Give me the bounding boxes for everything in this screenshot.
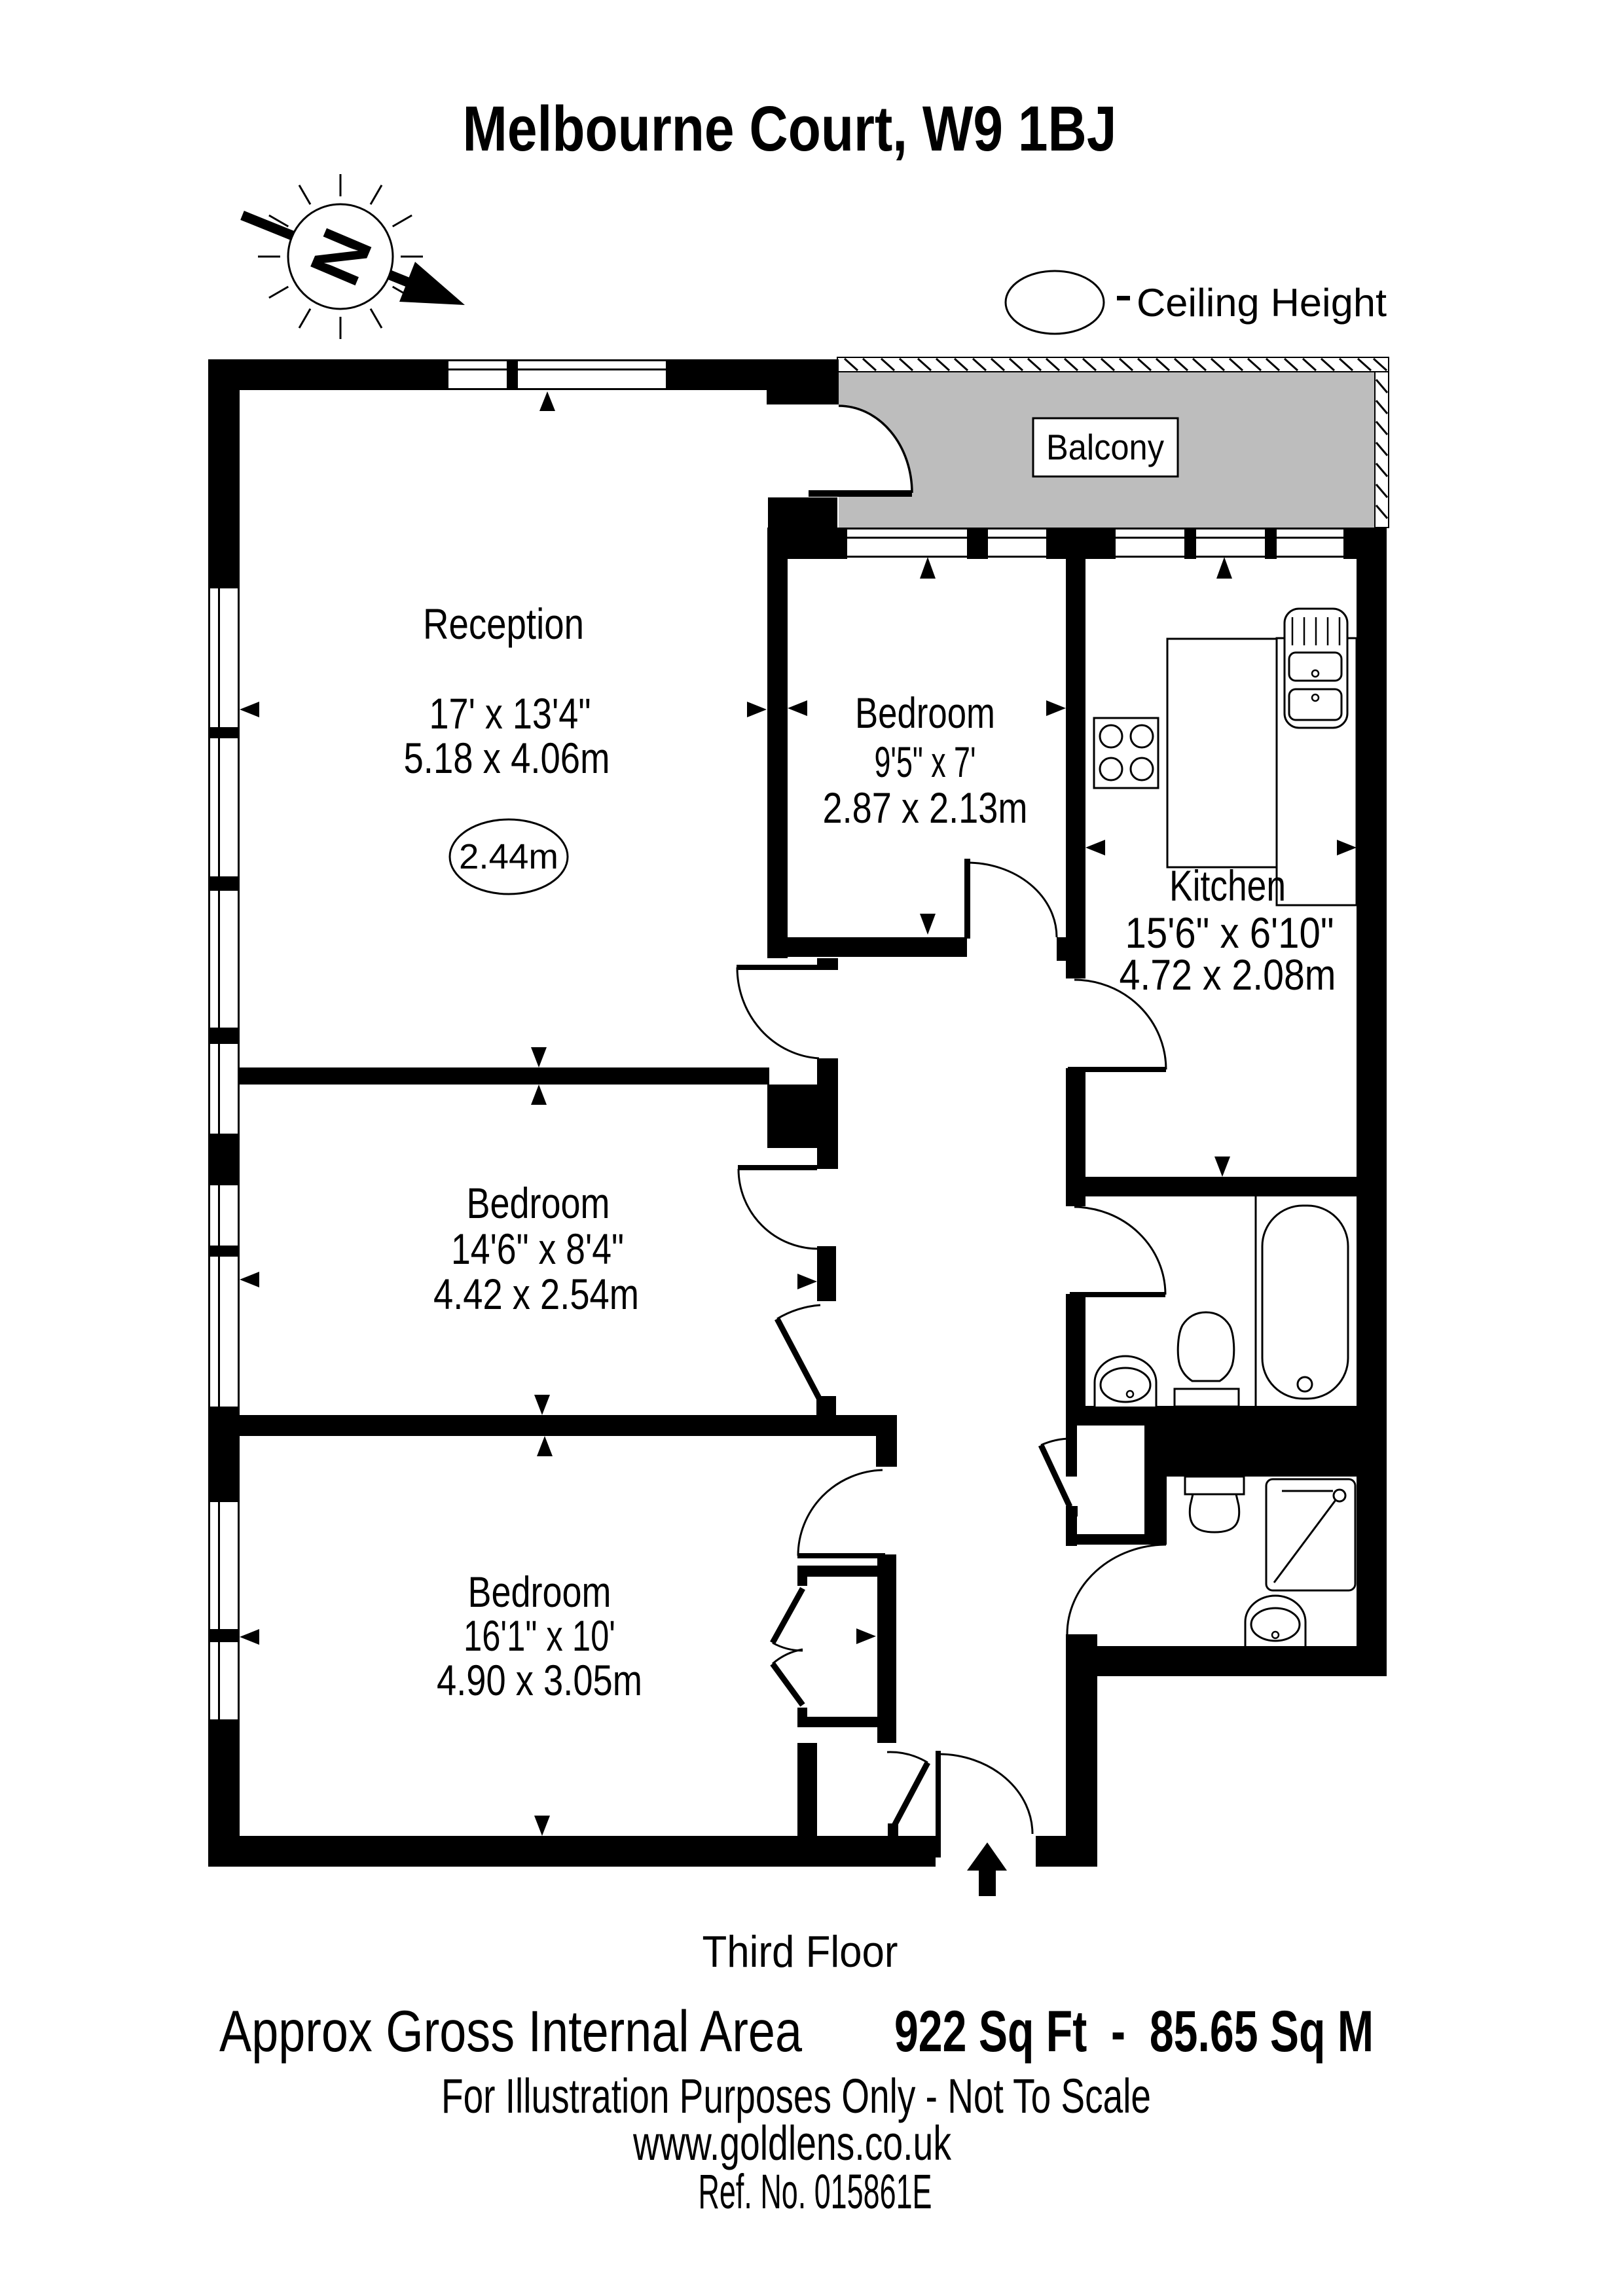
svg-text:5.18 x 4.06m: 5.18 x 4.06m <box>404 734 610 782</box>
svg-text:Reception: Reception <box>423 600 584 648</box>
svg-text:Ceiling Height: Ceiling Height <box>1137 281 1387 325</box>
svg-text:2.87 x 2.13m: 2.87 x 2.13m <box>823 783 1028 832</box>
svg-text:Bedroom: Bedroom <box>467 1179 610 1227</box>
svg-text:Approx Gross Internal Area: Approx Gross Internal Area <box>219 1998 802 2064</box>
svg-text:For Illustration Purposes Only: For Illustration Purposes Only - Not To … <box>441 2069 1151 2123</box>
svg-text:4.72 x 2.08m: 4.72 x 2.08m <box>1120 950 1336 999</box>
svg-text:www.goldlens.co.uk: www.goldlens.co.uk <box>632 2116 951 2170</box>
svg-text:4.90 x 3.05m: 4.90 x 3.05m <box>437 1656 642 1704</box>
svg-text:9'5" x 7': 9'5" x 7' <box>875 738 976 786</box>
svg-text:Kitchen: Kitchen <box>1169 861 1286 910</box>
svg-text:Third Floor: Third Floor <box>702 1927 898 1977</box>
svg-text:16'1" x 10': 16'1" x 10' <box>464 1611 615 1660</box>
svg-text:Melbourne Court, W9 1BJ: Melbourne Court, W9 1BJ <box>463 93 1117 164</box>
svg-text:Ref. No. 015861E: Ref. No. 015861E <box>699 2164 932 2219</box>
svg-text:2.44m: 2.44m <box>459 837 558 876</box>
svg-text:Balcony: Balcony <box>1046 427 1164 467</box>
svg-text:14'6" x 8'4": 14'6" x 8'4" <box>451 1225 624 1273</box>
svg-text:922 Sq Ft - 85.65 Sq M: 922 Sq Ft - 85.65 Sq M <box>894 1998 1374 2064</box>
svg-text:4.42 x 2.54m: 4.42 x 2.54m <box>433 1270 639 1318</box>
svg-text:17' x 13'4": 17' x 13'4" <box>429 689 591 738</box>
svg-text:Bedroom: Bedroom <box>468 1568 611 1616</box>
svg-text:15'6" x 6'10": 15'6" x 6'10" <box>1125 908 1334 957</box>
svg-text:Bedroom: Bedroom <box>855 689 995 737</box>
